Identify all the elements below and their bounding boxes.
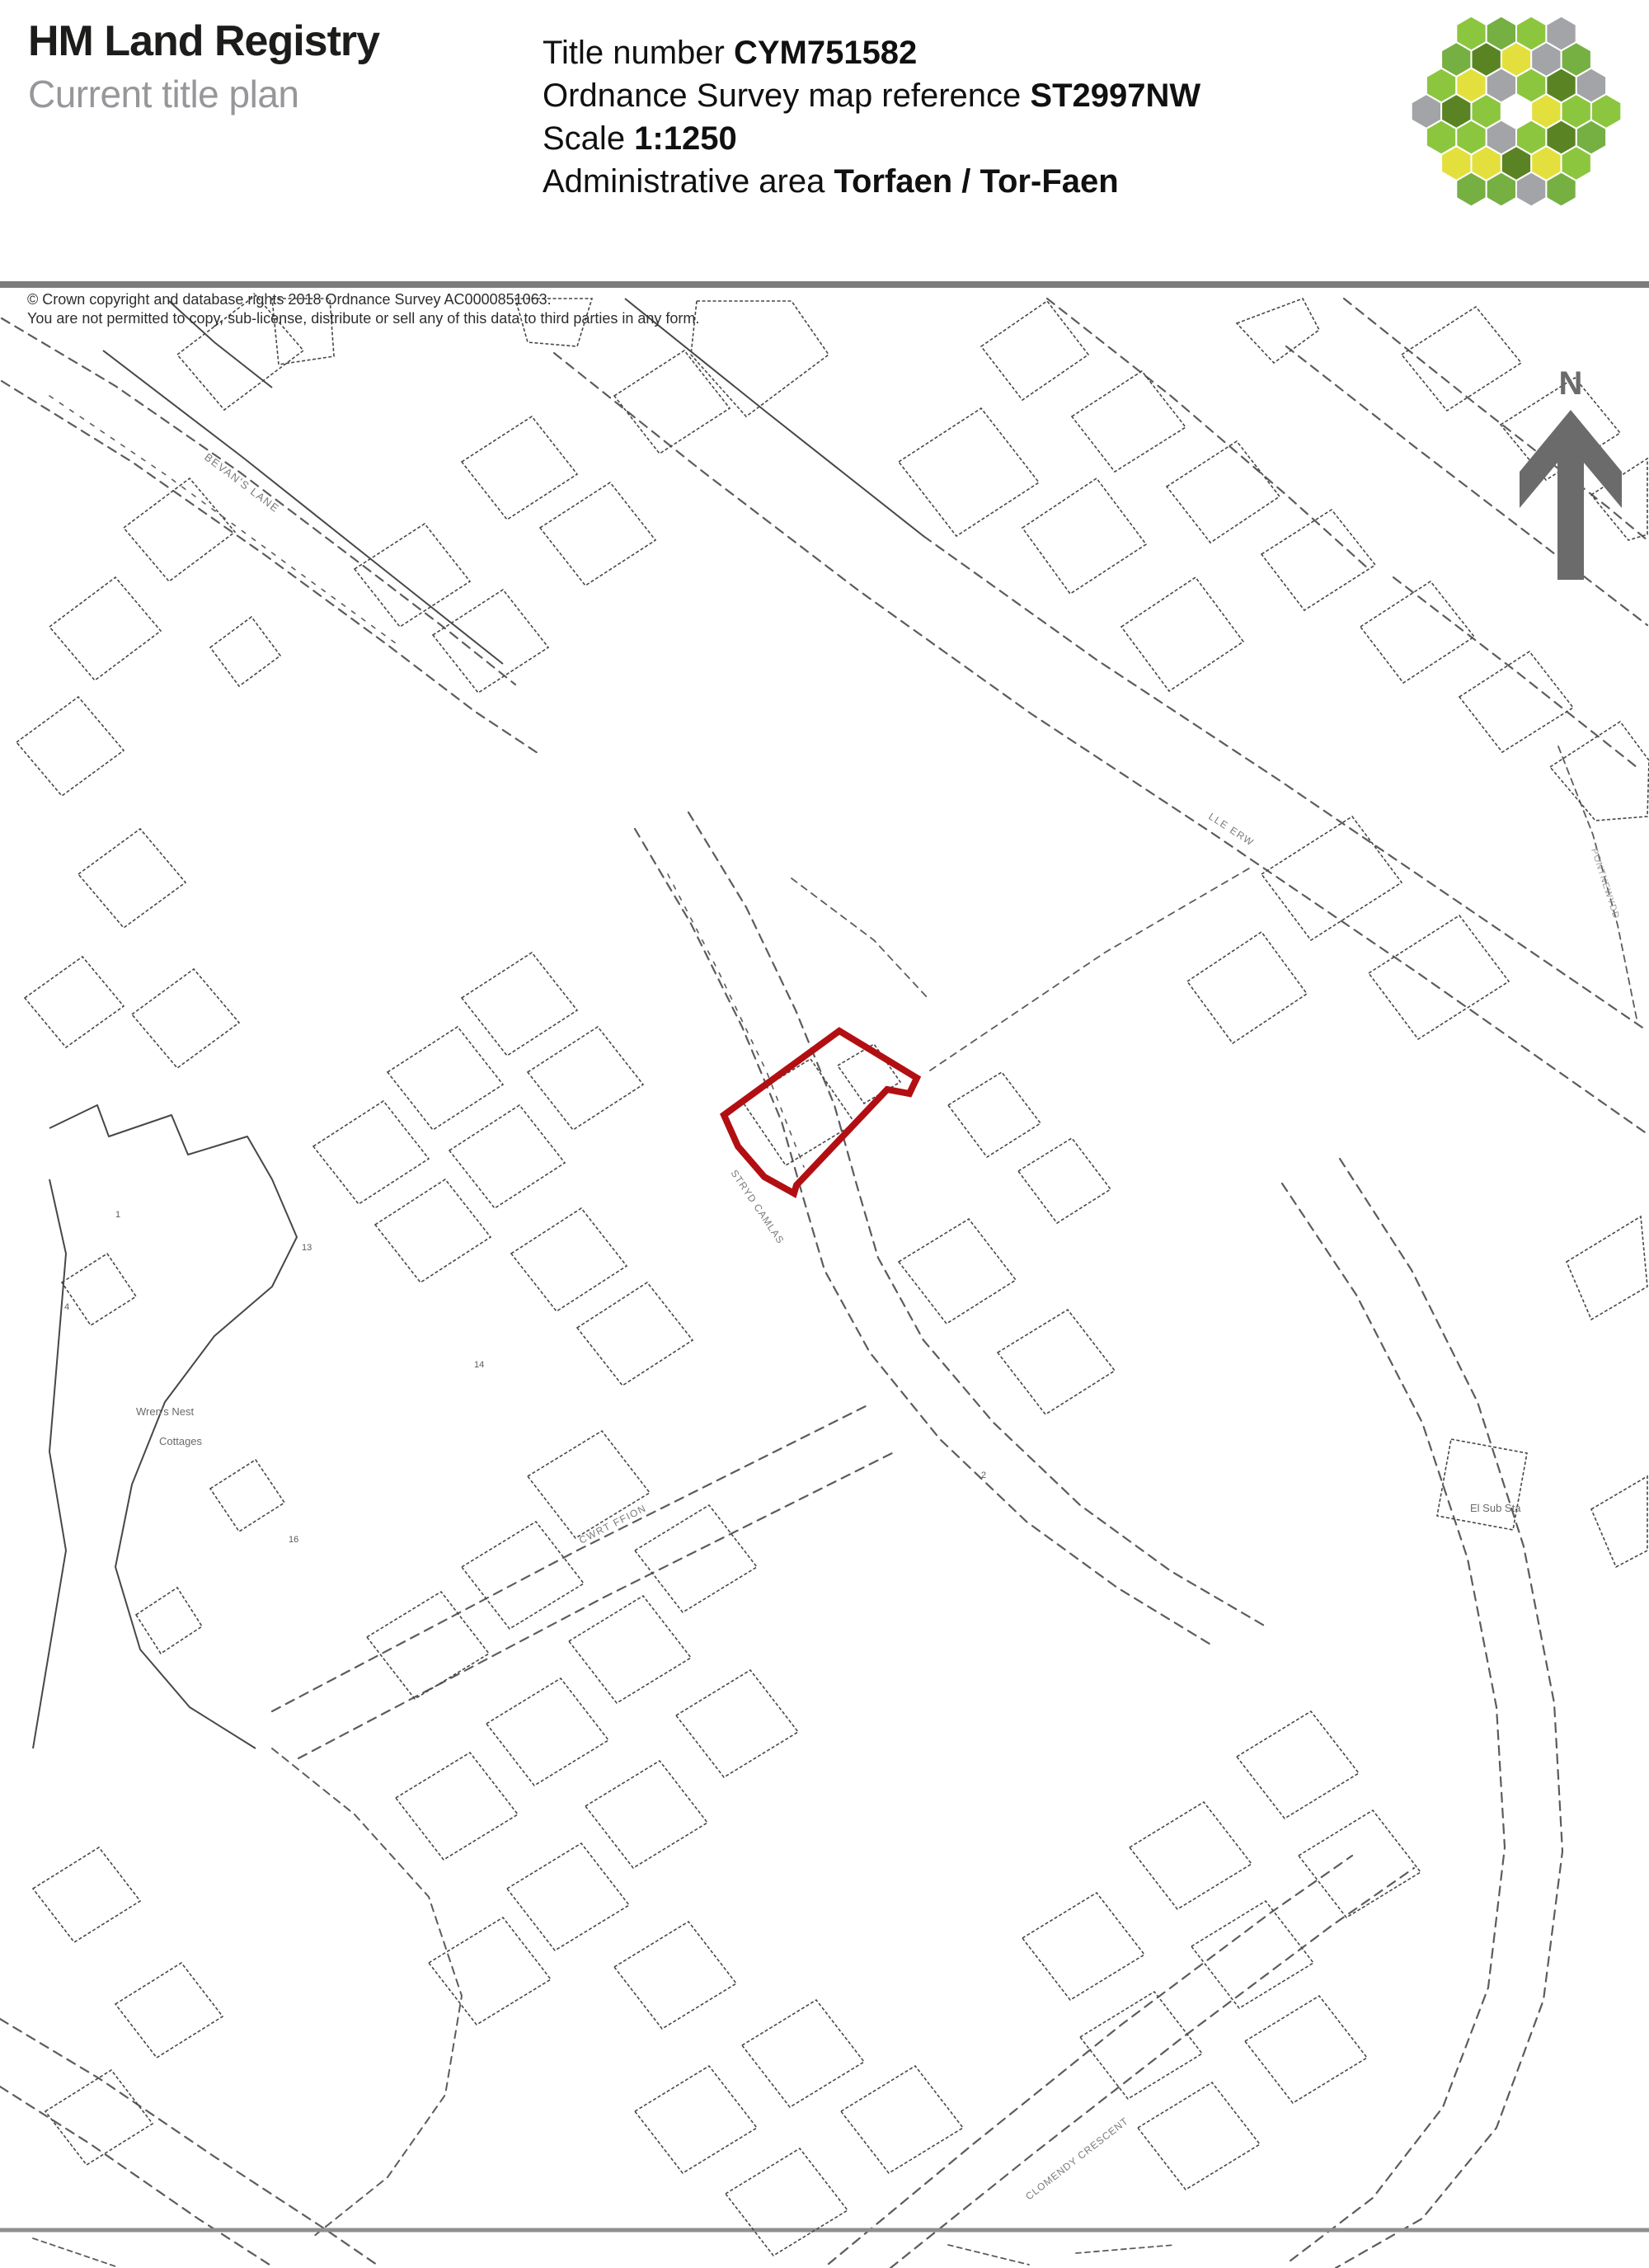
map-label: El Sub Sta <box>1470 1502 1521 1514</box>
boundary-line <box>49 1105 297 1748</box>
building-outline <box>462 953 577 1056</box>
header-divider <box>0 281 1649 288</box>
building-outline <box>635 2066 757 2173</box>
building-outline <box>210 1460 284 1532</box>
building-outline <box>585 1761 707 1868</box>
building-outline <box>136 1588 202 1654</box>
map-label: 13 <box>302 1243 312 1253</box>
logo-hexagon-cell <box>1547 173 1575 206</box>
logo-hexagon-cell <box>1562 95 1590 128</box>
building-outline <box>511 1208 627 1311</box>
road-edge-line <box>635 829 1212 1645</box>
building-outline <box>1167 441 1280 543</box>
road-edge-line <box>1286 346 1647 625</box>
map-label: BEVAN'S LANE <box>202 450 282 515</box>
building-outline <box>841 2066 963 2173</box>
building-outline <box>1022 478 1146 594</box>
map-label: 14 <box>474 1360 484 1370</box>
building-outline <box>1261 816 1402 940</box>
building-outline <box>1130 1802 1252 1909</box>
logo-hexagon-cell <box>1592 95 1620 128</box>
road-edge-line <box>1393 577 1637 767</box>
logo-hexagon-cell <box>1487 17 1515 50</box>
building-outline <box>742 1059 855 1165</box>
building-outline <box>33 1847 140 1942</box>
logo-hexagon-cell <box>1487 173 1515 206</box>
road-edge-line <box>49 396 396 643</box>
boundary-line <box>33 1179 66 1748</box>
building-outline <box>1245 1996 1367 2103</box>
building-outline <box>78 829 186 928</box>
logo-hexagon-cell <box>1517 17 1545 50</box>
map-label: 1 <box>115 1210 120 1220</box>
building-outline <box>742 2000 864 2107</box>
building-outline <box>1550 722 1649 821</box>
building-outline <box>449 1105 565 1208</box>
building-outline <box>1237 299 1319 363</box>
building-outline <box>1360 581 1474 683</box>
logo-hexagon-cell <box>1562 147 1590 180</box>
building-outline <box>1138 2082 1260 2190</box>
document-type-title: Current title plan <box>28 72 379 117</box>
logo-hexagon-cell <box>1457 121 1485 154</box>
building-outline <box>691 301 829 416</box>
building-outline <box>528 1027 643 1130</box>
logo-hexagon-cell <box>1442 147 1470 180</box>
building-outline <box>577 1282 693 1386</box>
map-label: Cottages <box>159 1435 203 1447</box>
admin-area-label: Administrative area <box>543 163 834 200</box>
document-header: HM Land Registry Current title plan Titl… <box>0 0 1649 280</box>
road-edge-line <box>1282 1183 1505 2264</box>
admin-area-value: Torfaen / Tor-Faen <box>834 163 1118 200</box>
copyright-line1: © Crown copyright and database rights 20… <box>27 290 699 309</box>
road-edge-line <box>33 2238 115 2266</box>
map-label: CWRT FFION <box>577 1502 648 1546</box>
logo-hexagon-cell <box>1532 43 1560 76</box>
road-edge-line <box>923 536 1647 1031</box>
map-label: LLE ERW <box>1206 811 1256 849</box>
building-outline <box>367 1592 489 1699</box>
building-outline <box>132 969 239 1068</box>
building-outline <box>1072 371 1186 472</box>
building-outline <box>396 1753 518 1860</box>
building-outline <box>899 408 1039 536</box>
building-outline <box>462 1522 584 1629</box>
building-outline <box>1191 1901 1313 2008</box>
building-outline <box>313 1101 429 1204</box>
scale-value: 1:1250 <box>634 120 737 157</box>
copyright-line2: You are not permitted to copy, sub-licen… <box>27 309 699 328</box>
boundary-line <box>103 351 503 664</box>
road-edge-line <box>688 812 1266 1626</box>
map-label: Wren's Nest <box>136 1405 195 1418</box>
building-outline <box>1237 1711 1359 1819</box>
road-edge-line <box>792 878 928 998</box>
building-outline <box>726 2148 848 2256</box>
title-plan-page: BEVAN'S LANELLE ERWPONTNEWYDDSTRYD CAMLA… <box>0 0 1649 2268</box>
logo-hexagon-cell <box>1457 69 1485 102</box>
building-outline <box>1121 577 1243 691</box>
building-outline <box>1018 1138 1111 1223</box>
building-outline <box>62 1254 136 1325</box>
map-label: PONTNEWYDD <box>1589 847 1621 920</box>
building-outline <box>1567 1216 1647 1320</box>
logo-hexagon-cell <box>1487 121 1515 154</box>
map-label: 2 <box>981 1470 986 1480</box>
building-outline <box>210 617 280 686</box>
map-label: 16 <box>289 1535 298 1545</box>
road-edge-line <box>272 1748 462 2237</box>
road-edge-line <box>1047 299 1369 569</box>
road-edge-line <box>298 1453 892 1758</box>
building-outline <box>507 1843 629 1950</box>
building-outline <box>1080 1992 1202 2099</box>
logo-hexagon-cell <box>1532 95 1560 128</box>
building-outline <box>1299 1810 1421 1917</box>
road-edge-line <box>668 874 804 1167</box>
building-outline <box>899 1219 1016 1324</box>
logo-hexagon-cell <box>1517 69 1545 102</box>
registered-title-red-edge <box>724 1031 917 1193</box>
north-arrow-label: N <box>1559 365 1583 402</box>
logo-hexagon-cell <box>1547 17 1575 50</box>
road-edge-line <box>554 353 1647 1134</box>
logo-hexagon-cell <box>1562 43 1590 76</box>
building-outline <box>433 590 548 693</box>
hmlr-brand-block: HM Land Registry Current title plan <box>28 18 379 117</box>
logo-hexagon-cell <box>1517 173 1545 206</box>
logo-hexagon-cell <box>1517 121 1545 154</box>
building-outline <box>375 1179 491 1282</box>
building-outline <box>569 1596 691 1703</box>
building-outline <box>635 1505 757 1612</box>
logo-hexagon-cell <box>1442 95 1470 128</box>
road-edge-line <box>890 1868 1414 2268</box>
building-outline <box>838 1044 900 1103</box>
hmlr-wordmark: HM Land Registry <box>28 18 379 65</box>
building-outline <box>614 1922 736 2029</box>
building-outline <box>49 577 161 680</box>
os-map-reference-line: Ordnance Survey map reference ST2997NW <box>543 74 1200 117</box>
logo-hexagon-cell <box>1473 95 1501 128</box>
building-outline <box>462 416 577 520</box>
building-outline <box>25 957 124 1047</box>
building-outline <box>1459 652 1573 752</box>
building-outline <box>1022 1893 1144 2000</box>
scale-line: Scale 1:1250 <box>543 117 1200 160</box>
road-edge-line <box>1344 299 1647 540</box>
road-edge-line <box>1336 1159 1562 2268</box>
building-outline <box>16 697 124 796</box>
road-edge-line <box>948 2245 1029 2265</box>
logo-hexagon-cell <box>1547 69 1575 102</box>
logo-hexagon-cell <box>1547 121 1575 154</box>
building-outline <box>540 482 655 586</box>
map-label: 4 <box>64 1302 69 1312</box>
building-outline <box>981 301 1088 400</box>
building-outline <box>676 1670 798 1777</box>
logo-hexagon-cell <box>1473 147 1501 180</box>
os-map-reference-label: Ordnance Survey map reference <box>543 78 1030 114</box>
logo-hexagon-cell <box>1427 69 1455 102</box>
logo-hexagon-cell <box>1577 121 1605 154</box>
road-edge-line <box>272 1406 866 1711</box>
title-number-label: Title number <box>543 35 734 71</box>
building-outline <box>124 478 235 581</box>
admin-area-line: Administrative area Torfaen / Tor-Faen <box>543 160 1200 203</box>
north-arrow-icon <box>1520 410 1622 580</box>
logo-hexagon-cell <box>1457 173 1485 206</box>
building-outline <box>948 1072 1041 1157</box>
logo-hexagon-cell <box>1473 43 1501 76</box>
map-label: STRYD CAMLAS <box>729 1168 787 1246</box>
title-number-line: Title number CYM751582 <box>543 31 1200 74</box>
logo-hexagon-cell <box>1532 147 1560 180</box>
hmlr-hexagon-logo-icon <box>1402 0 1649 231</box>
building-outline <box>1591 1476 1647 1567</box>
road-edge-line <box>829 1856 1352 2264</box>
building-outline <box>998 1310 1115 1414</box>
logo-hexagon-cell <box>1442 43 1470 76</box>
title-number-value: CYM751582 <box>734 35 917 71</box>
os-map-reference-value: ST2997NW <box>1030 78 1200 114</box>
logo-hexagon-cell <box>1577 69 1605 102</box>
building-outline <box>528 1431 650 1538</box>
copyright-notice: © Crown copyright and database rights 20… <box>27 290 699 328</box>
building-outline <box>1187 932 1307 1043</box>
building-outline <box>115 1963 223 2058</box>
boundary-line <box>625 299 923 536</box>
logo-hexagon-cell <box>1427 121 1455 154</box>
building-outline <box>1369 915 1509 1039</box>
scale-label: Scale <box>543 120 634 157</box>
building-outline <box>355 524 470 627</box>
building-outline <box>486 1678 608 1786</box>
logo-hexagon-cell <box>1457 17 1485 50</box>
map-label: CLOMENDY CRESCENT <box>1023 2115 1130 2202</box>
logo-hexagon-cell <box>1487 69 1515 102</box>
logo-hexagon-cell <box>1412 95 1440 128</box>
title-info-block: Title number CYM751582 Ordnance Survey m… <box>543 31 1200 203</box>
building-outline <box>614 351 730 454</box>
logo-hexagon-cell <box>1502 147 1530 180</box>
building-outline <box>429 1917 551 2025</box>
road-edge-line <box>1076 2245 1175 2253</box>
road-edge-line <box>930 866 1253 1070</box>
road-edge-line <box>1558 746 1637 1023</box>
road-edge-line <box>0 2087 272 2266</box>
building-outline <box>388 1027 503 1130</box>
logo-hexagon-cell <box>1502 43 1530 76</box>
title-plan-map: BEVAN'S LANELLE ERWPONTNEWYDDSTRYD CAMLA… <box>0 0 1649 2268</box>
